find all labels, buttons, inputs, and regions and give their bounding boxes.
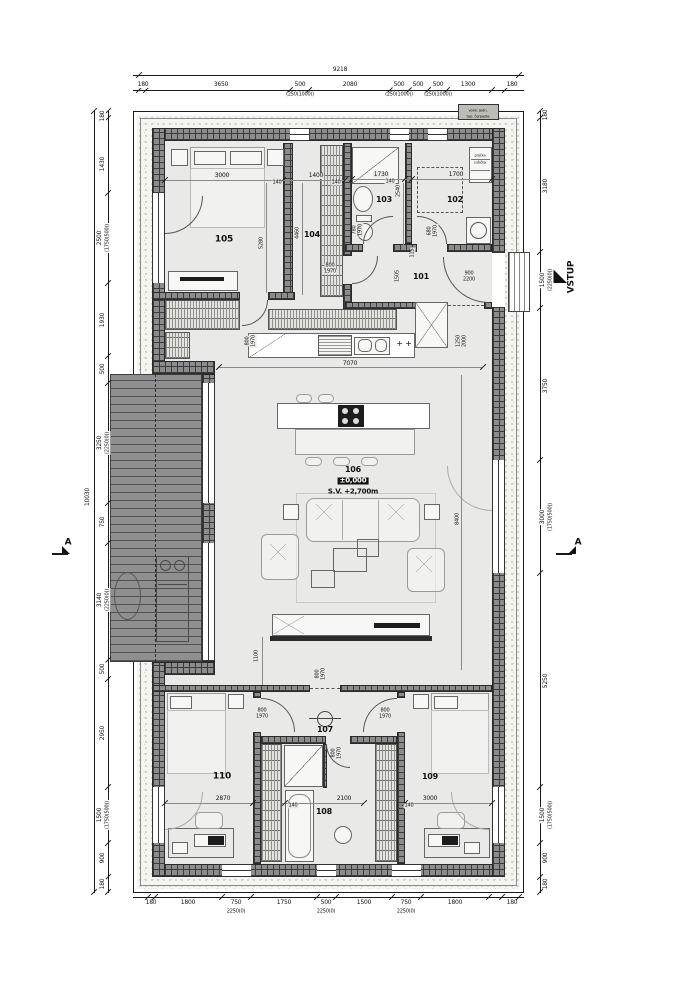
dims_left-10: 3140 <box>97 592 103 608</box>
room-label-110: 110 <box>213 773 231 782</box>
floor-plan-sheet: 105104103102101106107108109110±0,000S.V.… <box>0 0 686 998</box>
ceiling-height: S.V. +2,700m <box>328 489 378 496</box>
dims_bottom-1: 1800 <box>180 900 196 906</box>
dims_top-2: 3650 <box>213 82 229 88</box>
dim-top-total: 9218 <box>332 67 348 73</box>
dims_interior-30: 1970 <box>255 715 269 720</box>
washer-text-1: práčka <box>474 154 485 158</box>
dims_interior-8: 1700 <box>448 172 464 178</box>
dims_left-16: 900 <box>100 852 106 865</box>
dims_top-3: 500 <box>294 82 307 88</box>
dims_left-8: (2250(0)) <box>106 431 111 455</box>
annotation-layer: 105104103102101106107108109110±0,000S.V.… <box>0 0 686 998</box>
room-label-102: 102 <box>447 196 463 204</box>
dim-left-total: 10030 <box>85 487 91 507</box>
dims_interior-22: 7070 <box>342 361 358 367</box>
dims_interior-24: 2000 <box>463 334 468 348</box>
dims_interior-3: 140 <box>331 181 342 186</box>
level-value: ±0,000 <box>338 478 369 485</box>
dims_interior-0: 3000 <box>214 173 230 179</box>
dims_left-11: (2250(0)) <box>106 588 111 612</box>
dims_top-1: 180 <box>137 82 150 88</box>
dims_top-5: 500 <box>393 82 406 88</box>
dims_bottom-0: 180 <box>145 900 158 906</box>
dims_right-0: 180 <box>543 109 549 122</box>
dims_interior-14: 115 <box>411 248 416 259</box>
hob-symbol: + + <box>396 340 411 348</box>
dims_left-1: 180 <box>100 110 106 123</box>
floor-plan: 105104103102101106107108109110±0,000S.V.… <box>0 0 686 998</box>
dims_top-8: 1300 <box>460 82 476 88</box>
dims_bottom-2: 750 <box>230 900 243 906</box>
dims_left-4: (1750(500)) <box>106 223 111 253</box>
dims_interior-36: 140 <box>288 804 299 809</box>
room-label-109: 109 <box>422 773 438 781</box>
dims_top-7: 500 <box>432 82 445 88</box>
dims_interior-1: 140 <box>272 181 283 186</box>
dims_interior-4: 5280 <box>260 236 265 250</box>
dims_top-11: (250(1000)) <box>384 93 414 98</box>
room-label-101: 101 <box>413 273 429 281</box>
dims_right-4: 3750 <box>543 378 549 394</box>
dims_interior-2: 1400 <box>308 173 324 179</box>
dims_top-9: 180 <box>506 82 519 88</box>
room-label-108: 108 <box>316 808 332 816</box>
dims_right-9: (1750(500)) <box>549 800 554 830</box>
dims_left-2: 1430 <box>100 156 106 172</box>
dims_right-8: 1500 <box>540 807 546 823</box>
dims_interior-11: 1970 <box>359 223 364 237</box>
section-label-right: A <box>575 539 582 548</box>
dims_right-11: 180 <box>543 878 549 891</box>
dims_interior-17: 2200 <box>462 278 476 283</box>
dims_top-6: 500 <box>412 82 425 88</box>
dims_interior-9: 2540 <box>397 184 402 198</box>
dims_interior-13: 1970 <box>434 224 439 238</box>
dims_interior-34: 1970 <box>338 746 343 760</box>
dims_right-1: 3180 <box>543 178 549 194</box>
dims_top-4: 2080 <box>342 82 358 88</box>
dims_interior-5: 4460 <box>296 226 301 240</box>
dims_bottom-3: 1750 <box>276 900 292 906</box>
dims_interior-38: 140 <box>404 804 415 809</box>
dims_right-3: (2250(0)) <box>549 268 554 292</box>
dims_bottom-10: 2250(0) <box>316 910 336 915</box>
dims_left-7: 3250 <box>97 435 103 451</box>
washer-text-2: sušička <box>474 161 486 165</box>
room-label-106: 106 <box>345 466 361 474</box>
dims_interior-25: 8400 <box>456 512 461 526</box>
room-label-105: 105 <box>215 236 233 245</box>
dims_interior-21: 1970 <box>252 334 257 348</box>
dims_interior-39: 3000 <box>422 796 438 802</box>
dims_bottom-8: 180 <box>506 900 519 906</box>
dims_interior-28: 1970 <box>322 667 327 681</box>
dims_interior-26: 1100 <box>255 649 260 663</box>
dims_interior-32: 1970 <box>378 715 392 720</box>
entrance-label: VSTUP <box>568 261 577 294</box>
hp-unit-text-1: vonk. jedn. <box>468 109 487 113</box>
dims_interior-35: 2870 <box>215 796 231 802</box>
dims_left-3: 2500 <box>97 230 103 246</box>
room-label-103: 103 <box>376 196 392 204</box>
dims_left-15: (1750(500)) <box>106 800 111 830</box>
room-label-107: 107 <box>317 726 333 734</box>
dims_right-7: 5250 <box>543 673 549 689</box>
dims_bottom-4: 500 <box>320 900 333 906</box>
section-label-left: A <box>65 539 72 548</box>
dims_bottom-7: 1800 <box>447 900 463 906</box>
dims_left-6: 500 <box>100 363 106 376</box>
dims_bottom-6: 750 <box>400 900 413 906</box>
dims_left-9: 750 <box>100 516 106 529</box>
dims_interior-6: 1730 <box>373 172 389 178</box>
dims_interior-15: 1505 <box>396 269 401 283</box>
dims_left-17: 180 <box>100 878 106 891</box>
hp-unit-text-2: tep. čerpadla <box>467 115 490 119</box>
dims_bottom-11: 2250(0) <box>396 910 416 915</box>
dims_interior-7: 140 <box>385 180 396 185</box>
dims_left-13: 2950 <box>100 725 106 741</box>
dims_right-2: 1500 <box>540 272 546 288</box>
dims_right-5: 3000 <box>540 509 546 525</box>
dims_right-10: 900 <box>543 852 549 865</box>
room-label-104: 104 <box>304 231 320 239</box>
dims_interior-37: 2100 <box>336 796 352 802</box>
dims_top-12: (250(1000)) <box>423 93 453 98</box>
dims_left-14: 1500 <box>97 807 103 823</box>
dims_left-12: 500 <box>100 663 106 676</box>
dims_bottom-5: 1500 <box>356 900 372 906</box>
dims_interior-19: 1970 <box>323 270 337 275</box>
dims_right-6: (1750(500)) <box>549 502 554 532</box>
dims_bottom-9: 2250(0) <box>226 910 246 915</box>
dims_top-10: (250(1000)) <box>285 93 315 98</box>
dims_left-5: 1930 <box>100 312 106 328</box>
